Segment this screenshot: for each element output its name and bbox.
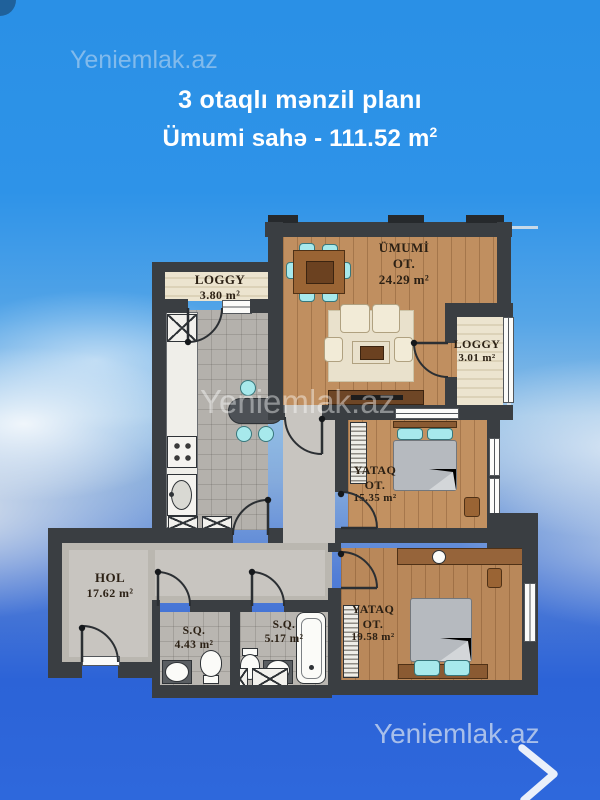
sofa: [372, 304, 400, 333]
room-name: S.Q.: [248, 618, 320, 632]
next-button[interactable]: [512, 744, 564, 800]
wall: [445, 303, 513, 317]
wall: [118, 662, 155, 678]
wall: [48, 528, 62, 678]
room-label-bedroom2: YATAQ OT. 19.58 m²: [340, 602, 406, 645]
room-label-bathroom-small: S.Q. 4.43 m²: [158, 624, 230, 652]
dining-table-center: [306, 261, 334, 284]
chair: [487, 568, 502, 588]
window: [489, 438, 500, 476]
window: [524, 583, 536, 642]
pillow: [444, 660, 470, 676]
wall: [152, 262, 165, 312]
wall: [48, 528, 152, 543]
room-label-loggia-top: LOGGY 3.80 m²: [168, 272, 272, 302]
wall: [152, 312, 166, 543]
chair: [464, 497, 480, 517]
desk: [397, 548, 523, 565]
room-name: LOGGY: [168, 272, 272, 288]
bar-stool: [258, 426, 274, 442]
bar-stool: [236, 426, 252, 442]
toilet: [200, 650, 222, 684]
wall: [265, 222, 512, 237]
room-label-hall: HOL 17.62 m²: [68, 570, 152, 600]
entry-threshold: [82, 656, 120, 666]
blanket-fold: [429, 469, 456, 490]
room-name: HOL: [68, 570, 152, 586]
room-name: LOGGY: [446, 337, 508, 352]
wall: [335, 528, 500, 543]
room-area: 3.80 m²: [168, 288, 272, 303]
room-area: 24.29 m²: [352, 272, 456, 288]
room-name: ÜMUMİ: [352, 240, 456, 256]
room-name: OT.: [340, 617, 406, 632]
wall: [497, 222, 511, 312]
sofa: [340, 304, 370, 333]
room-label-living: ÜMUMİ OT. 24.29 m²: [352, 240, 456, 288]
chevron-right-icon: [512, 744, 564, 800]
wall: [328, 543, 341, 552]
room-name: OT.: [342, 478, 408, 493]
pillow: [414, 660, 440, 676]
wall: [190, 600, 252, 612]
bathtub-drain: [309, 665, 314, 670]
dining-table: [293, 250, 345, 294]
hall-floor-entry: [62, 543, 155, 664]
room-area: 4.43 m²: [158, 638, 230, 652]
wall: [152, 685, 332, 698]
blanket-fold: [440, 638, 471, 661]
corridor-floor: [283, 405, 335, 545]
window: [489, 478, 500, 518]
wall: [487, 513, 538, 548]
wall: [388, 215, 424, 223]
ventilation-shaft: [167, 314, 197, 342]
armchair: [394, 337, 413, 362]
room-name: OT.: [352, 256, 456, 272]
stove: [167, 436, 197, 468]
wall: [48, 662, 82, 678]
room-name: YATAQ: [342, 463, 408, 478]
room-name: S.Q.: [158, 624, 230, 638]
kitchen-sink-unit: [167, 474, 197, 516]
wall: [284, 600, 332, 612]
floor-plan: LOGGY 3.80 m² ÜMUMİ OT. 24.29 m² LOGGY 3…: [0, 0, 600, 800]
wall: [328, 680, 538, 695]
room-area: 17.62 m²: [68, 586, 152, 601]
room-area: 15.35 m²: [342, 492, 408, 505]
room-area: 19.58 m²: [340, 631, 406, 644]
bed-bench: [398, 664, 488, 679]
wall: [268, 528, 283, 543]
pillow: [427, 428, 453, 440]
bathroom-sink: [165, 662, 189, 682]
coffee-table: [352, 341, 390, 364]
real-estate-plan-image: Yeniemlak.az 3 otaqlı mənzil planı Ümumi…: [0, 0, 600, 800]
desk-mirror: [432, 550, 446, 564]
wall: [152, 262, 268, 272]
wall: [152, 528, 233, 543]
room-area: 5.17 m²: [248, 632, 320, 646]
kitchen-sink: [171, 480, 192, 510]
room-area: 3.01 m²: [446, 352, 508, 365]
room-label-bathroom-big: S.Q. 5.17 m²: [248, 618, 320, 646]
bed-headboard: [393, 421, 457, 428]
plan-watermark: Yeniemlak.az: [200, 383, 395, 421]
room-label-bedroom1: YATAQ OT. 15.35 m²: [342, 463, 408, 506]
window: [395, 408, 459, 419]
bed: [410, 598, 472, 662]
room-name: YATAQ: [340, 602, 406, 617]
armchair: [324, 337, 343, 362]
pillow: [397, 428, 423, 440]
faucet-dot: [169, 492, 174, 497]
wall: [445, 377, 457, 407]
room-label-loggia-right: LOGGY 3.01 m²: [446, 337, 508, 365]
coffee-table-top: [360, 346, 384, 360]
